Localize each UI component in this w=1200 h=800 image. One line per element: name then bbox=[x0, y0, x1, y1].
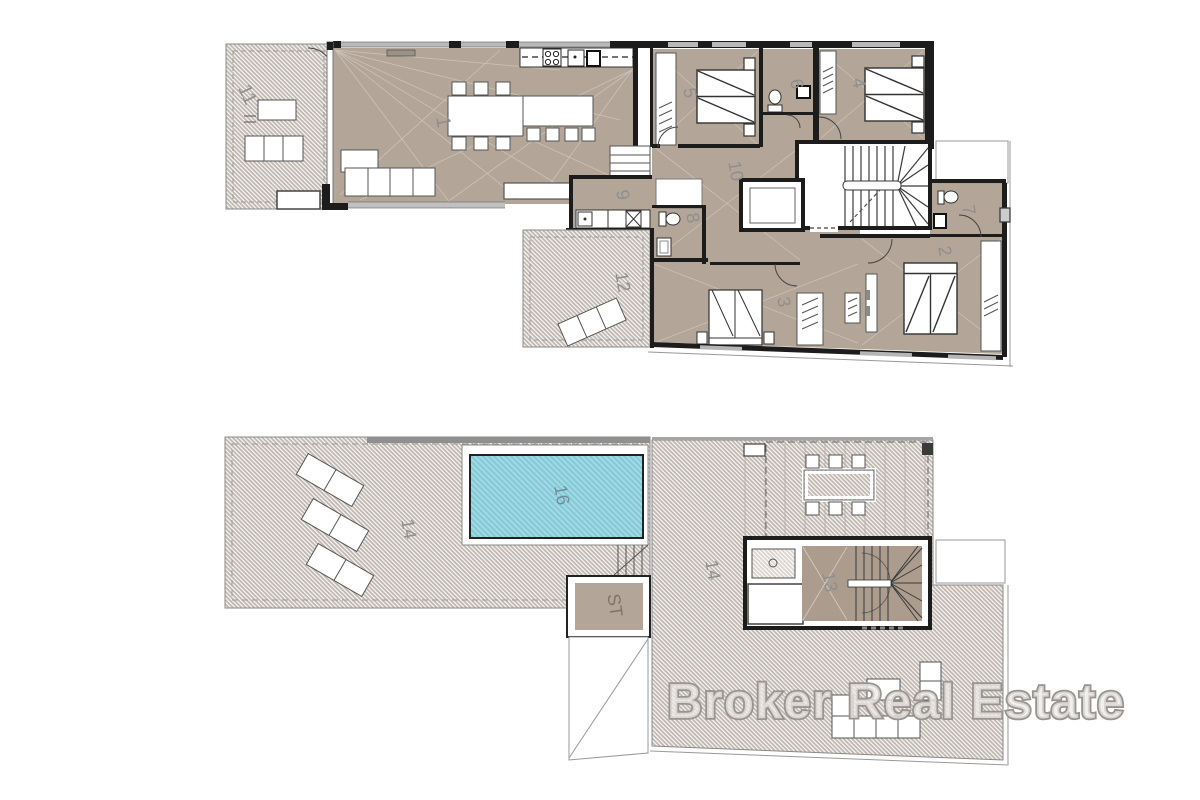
svg-text:10: 10 bbox=[724, 159, 747, 182]
svg-text:16: 16 bbox=[550, 483, 573, 506]
svg-text:13: 13 bbox=[818, 570, 841, 593]
svg-text:12: 12 bbox=[611, 270, 634, 293]
svg-text:ST: ST bbox=[603, 592, 626, 618]
svg-text:Broker Real Estate: Broker Real Estate bbox=[667, 675, 1127, 729]
svg-text:14: 14 bbox=[701, 558, 724, 581]
svg-text:14: 14 bbox=[397, 517, 420, 540]
